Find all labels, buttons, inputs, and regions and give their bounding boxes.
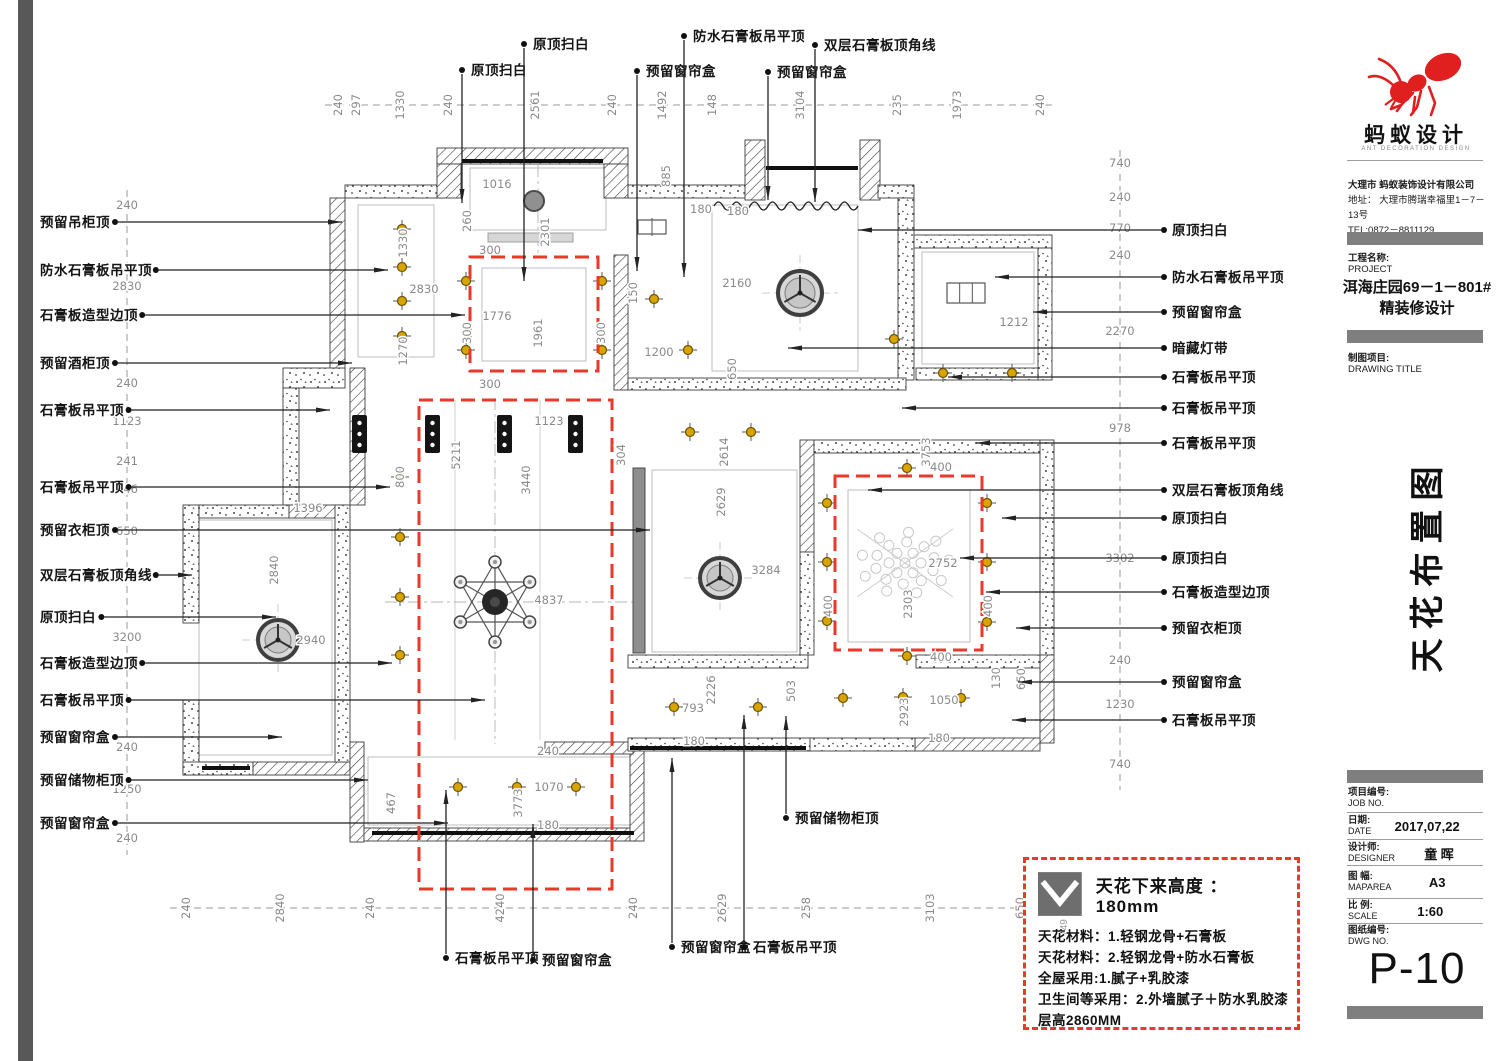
field-maparea: 图 幅:MAPAREA A3	[1348, 867, 1483, 897]
svg-text:4240: 4240	[493, 893, 507, 922]
svg-text:650: 650	[725, 358, 739, 380]
gray-bar	[1347, 1006, 1483, 1019]
brand-subtitle: ANT DECORATION DESIGN	[1347, 146, 1485, 152]
svg-text:4837: 4837	[534, 593, 563, 607]
svg-text:400: 400	[981, 595, 995, 617]
svg-text:预留窗帘盒: 预留窗帘盒	[542, 952, 612, 969]
svg-text:180: 180	[683, 734, 705, 748]
scale-value: 1:60	[1378, 904, 1483, 919]
svg-text:2301: 2301	[538, 217, 552, 246]
project-name-2: 精装修设计	[1341, 297, 1493, 318]
svg-text:3104: 3104	[793, 90, 807, 119]
svg-text:石膏板吊平顶: 石膏板吊平顶	[454, 950, 539, 967]
svg-text:防水石膏板吊平顶: 防水石膏板吊平顶	[40, 262, 152, 279]
svg-text:2270: 2270	[1105, 324, 1134, 338]
svg-text:2840: 2840	[273, 893, 287, 922]
svg-text:原顶扫白: 原顶扫白	[1172, 550, 1228, 567]
svg-text:双层石膏板顶角线: 双层石膏板顶角线	[1172, 482, 1284, 499]
svg-text:240: 240	[363, 897, 377, 919]
svg-text:300: 300	[479, 377, 501, 391]
brand-name: 蚂蚁设计	[1347, 119, 1485, 149]
divider	[1347, 923, 1483, 924]
svg-text:180: 180	[537, 818, 559, 832]
svg-text:1961: 1961	[531, 318, 545, 347]
svg-text:石膏板吊平顶: 石膏板吊平顶	[39, 402, 124, 419]
svg-text:2226: 2226	[704, 675, 718, 704]
svg-text:1776: 1776	[482, 309, 511, 323]
svg-text:297: 297	[349, 94, 363, 116]
svg-text:400: 400	[821, 595, 835, 617]
svg-text:原顶扫白: 原顶扫白	[40, 609, 96, 626]
svg-text:石膏板吊平顶: 石膏板吊平顶	[1171, 369, 1256, 386]
svg-text:1330: 1330	[396, 228, 410, 257]
svg-text:240: 240	[626, 897, 640, 919]
svg-text:预留储物柜顶: 预留储物柜顶	[795, 810, 879, 827]
svg-text:2923: 2923	[897, 697, 911, 726]
svg-text:原顶扫白: 原顶扫白	[533, 36, 589, 53]
svg-text:1973: 1973	[950, 90, 964, 119]
svg-text:预留衣柜顶: 预留衣柜顶	[1172, 620, 1242, 637]
svg-text:石膏板造型边顶: 石膏板造型边顶	[39, 655, 138, 672]
svg-text:2830: 2830	[112, 279, 141, 293]
svg-text:防水石膏板吊平顶: 防水石膏板吊平顶	[1172, 269, 1284, 286]
svg-text:石膏板吊平顶: 石膏板吊平顶	[1171, 400, 1256, 417]
svg-text:预留窗帘盒: 预留窗帘盒	[777, 64, 847, 81]
date-value: 2017,07,22	[1371, 819, 1483, 834]
window-lines	[202, 161, 858, 833]
svg-text:650: 650	[116, 524, 138, 538]
svg-text:预留衣柜顶: 预留衣柜顶	[40, 522, 110, 539]
svg-text:240: 240	[116, 376, 138, 390]
svg-text:2752: 2752	[928, 556, 957, 570]
svg-text:预留储物柜顶: 预留储物柜顶	[40, 772, 124, 789]
legend-line: 全屋采用:1.腻子+乳胶漆	[1038, 968, 1287, 989]
svg-text:预留吊柜顶: 预留吊柜顶	[40, 214, 110, 231]
svg-text:260: 260	[460, 210, 474, 232]
svg-text:双层石膏板顶角线: 双层石膏板顶角线	[40, 567, 152, 584]
svg-text:石膏板造型边顶: 石膏板造型边顶	[1171, 584, 1270, 601]
svg-text:暗藏灯带: 暗藏灯带	[1172, 340, 1228, 357]
svg-text:1330: 1330	[393, 90, 407, 119]
svg-text:650: 650	[1014, 668, 1028, 690]
svg-text:240: 240	[1033, 94, 1047, 116]
legend-icon-dim: 749	[1059, 919, 1070, 936]
svg-text:1270: 1270	[396, 336, 410, 365]
svg-text:240: 240	[605, 94, 619, 116]
svg-text:240: 240	[537, 744, 559, 758]
svg-text:预留窗帘盒: 预留窗帘盒	[1172, 304, 1242, 321]
ant-logo	[1355, 45, 1475, 117]
svg-text:150: 150	[626, 282, 640, 304]
svg-text:467: 467	[384, 792, 398, 814]
svg-text:800: 800	[393, 466, 407, 488]
legend-height-note: 天花下来高度 ： 180mm	[1096, 872, 1287, 917]
svg-text:2160: 2160	[722, 276, 751, 290]
company-info: 大理市 蚂蚁装饰设计有限公司 地址： 大理市腾瑞幸福里1－7－13号 TEL:0…	[1348, 178, 1488, 238]
svg-text:740: 740	[1109, 757, 1131, 771]
svg-text:300: 300	[479, 243, 501, 257]
svg-text:2629: 2629	[715, 893, 729, 922]
svg-text:2629: 2629	[714, 487, 728, 516]
svg-text:885: 885	[659, 165, 673, 187]
svg-text:1070: 1070	[534, 780, 563, 794]
svg-text:978: 978	[1109, 421, 1131, 435]
designer-value: 童 晖	[1395, 844, 1483, 863]
svg-text:1396: 1396	[293, 501, 322, 515]
svg-text:235: 235	[890, 94, 904, 116]
svg-text:2561: 2561	[528, 90, 542, 119]
svg-text:预留酒柜顶: 预留酒柜顶	[40, 355, 110, 372]
svg-text:503: 503	[784, 680, 798, 702]
svg-text:原顶扫白: 原顶扫白	[1172, 222, 1228, 239]
ceiling-drop-icon	[1038, 871, 1082, 917]
svg-text:240: 240	[331, 94, 345, 116]
svg-text:预留窗帘盒: 预留窗帘盒	[40, 815, 110, 832]
project-name: 洱海庄园69－1－801#	[1341, 276, 1493, 297]
legend-box: 天花下来高度 ： 180mm 749 天花材料：1.轻钢龙骨+石膏板 天花材料：…	[1023, 857, 1300, 1030]
divider	[1347, 160, 1483, 161]
svg-text:石膏板造型边顶: 石膏板造型边顶	[39, 307, 138, 324]
svg-text:1230: 1230	[1105, 697, 1134, 711]
divider	[1347, 839, 1483, 840]
svg-text:2830: 2830	[409, 282, 438, 296]
svg-text:预留窗帘盒: 预留窗帘盒	[646, 63, 716, 80]
svg-text:1123: 1123	[534, 414, 563, 428]
divider	[1347, 865, 1483, 866]
gray-bar	[1347, 330, 1483, 343]
svg-text:2840: 2840	[267, 555, 281, 584]
company-address: 地址： 大理市腾瑞幸福里1－7－13号	[1348, 193, 1488, 223]
svg-text:3773: 3773	[511, 788, 525, 817]
svg-text:240: 240	[1109, 190, 1131, 204]
svg-text:180: 180	[690, 202, 712, 216]
svg-text:防水石膏板吊平顶: 防水石膏板吊平顶	[693, 28, 805, 45]
svg-text:双层石膏板顶角线: 双层石膏板顶角线	[824, 37, 936, 54]
svg-text:5211: 5211	[449, 440, 463, 469]
drawing-title-label: 制图项目: DRAWING TITLE	[1348, 350, 1422, 375]
divider	[1347, 898, 1483, 899]
svg-text:原顶扫白: 原顶扫白	[471, 62, 527, 79]
field-scale: 比 例:SCALE 1:60	[1348, 900, 1483, 922]
walls	[183, 140, 1054, 842]
svg-text:241: 241	[116, 454, 138, 468]
svg-text:石膏板吊平顶: 石膏板吊平顶	[39, 692, 124, 709]
svg-text:740: 740	[1109, 156, 1131, 170]
svg-text:180: 180	[727, 204, 749, 218]
svg-text:770: 770	[1109, 221, 1131, 235]
svg-text:原顶扫白: 原顶扫白	[1172, 510, 1228, 527]
svg-text:793: 793	[682, 701, 704, 715]
svg-text:400: 400	[930, 460, 952, 474]
svg-text:240: 240	[1109, 248, 1131, 262]
svg-text:148: 148	[705, 94, 719, 116]
company-name: 大理市 蚂蚁装饰设计有限公司	[1348, 178, 1488, 193]
svg-text:3440: 3440	[519, 465, 533, 494]
svg-text:300: 300	[594, 322, 608, 344]
field-designer: 设计师:DESIGNER 童 晖	[1348, 841, 1483, 865]
ceiling-plan-drawing-sheet: 2402971330240256124014921483104235197324…	[0, 0, 1500, 1061]
project-label: 工程名称: PROJECT	[1348, 250, 1392, 275]
svg-text:2940: 2940	[296, 633, 325, 647]
field-date: 日期:DATE 2017,07,22	[1348, 814, 1483, 838]
svg-text:预留窗帘盒: 预留窗帘盒	[1172, 674, 1242, 691]
svg-text:2614: 2614	[717, 437, 731, 466]
svg-text:石膏板吊平顶: 石膏板吊平顶	[39, 479, 124, 496]
svg-text:130: 130	[989, 667, 1003, 689]
svg-text:240: 240	[116, 831, 138, 845]
svg-text:预留窗帘盒: 预留窗帘盒	[681, 939, 751, 956]
gray-bar	[1347, 770, 1483, 783]
svg-text:300: 300	[460, 322, 474, 344]
svg-text:240: 240	[179, 897, 193, 919]
svg-text:预留窗帘盒: 预留窗帘盒	[40, 729, 110, 746]
svg-text:240: 240	[1109, 653, 1131, 667]
svg-text:240: 240	[116, 740, 138, 754]
svg-text:180: 180	[928, 731, 950, 745]
svg-text:石膏板吊平顶: 石膏板吊平顶	[752, 939, 837, 956]
legend-line: 卫生间等采用：2.外墙腻子＋防水乳胶漆	[1038, 989, 1287, 1010]
svg-text:240: 240	[116, 198, 138, 212]
svg-text:3103: 3103	[923, 893, 937, 922]
field-job-no: 项目编号:JOB NO.	[1348, 786, 1483, 810]
svg-text:1050: 1050	[929, 693, 958, 707]
svg-text:2303: 2303	[901, 589, 915, 618]
svg-text:3284: 3284	[751, 563, 780, 577]
svg-text:石膏板吊平顶: 石膏板吊平顶	[1171, 712, 1256, 729]
svg-text:1016: 1016	[482, 177, 511, 191]
gray-bar	[1347, 232, 1483, 245]
legend-line: 天花材料：2.轻钢龙骨+防水石膏板	[1038, 947, 1287, 968]
drawing-number: P-10	[1341, 944, 1493, 994]
svg-text:304: 304	[614, 444, 628, 466]
legend-line: 层高2860MM	[1038, 1010, 1287, 1031]
svg-text:400: 400	[930, 650, 952, 664]
svg-text:1200: 1200	[644, 345, 673, 359]
svg-text:3200: 3200	[112, 630, 141, 644]
legend-line: 天花材料：1.轻钢龙骨+石膏板	[1038, 926, 1287, 947]
maparea-value: A3	[1391, 875, 1483, 890]
svg-text:石膏板吊平顶: 石膏板吊平顶	[1171, 435, 1256, 452]
svg-text:240: 240	[441, 94, 455, 116]
drawing-title-vertical: 天花布置图	[1400, 435, 1444, 695]
divider	[1347, 812, 1483, 813]
svg-text:258: 258	[799, 897, 813, 919]
svg-text:1212: 1212	[999, 315, 1028, 329]
svg-text:1492: 1492	[655, 90, 669, 119]
